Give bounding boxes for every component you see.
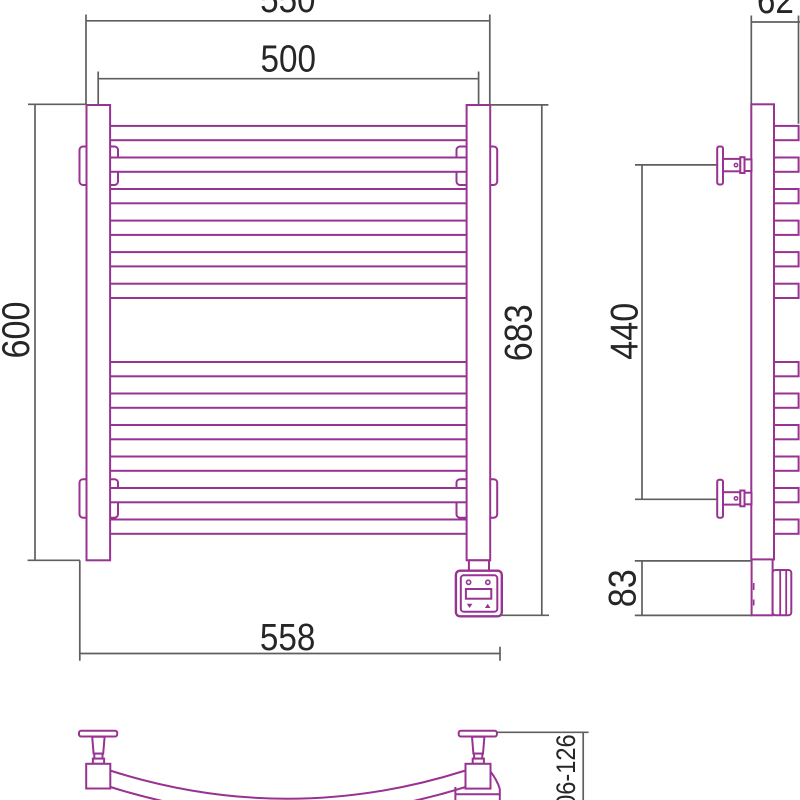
svg-text:550: 550 [260, 0, 315, 21]
svg-text:62: 62 [757, 0, 794, 22]
svg-text:683: 683 [497, 304, 541, 361]
svg-text:500: 500 [260, 37, 315, 80]
svg-text:600: 600 [0, 302, 37, 359]
svg-text:106-126: 106-126 [551, 734, 581, 800]
svg-text:83: 83 [600, 569, 644, 607]
svg-text:440: 440 [602, 303, 646, 360]
svg-text:558: 558 [260, 616, 315, 659]
